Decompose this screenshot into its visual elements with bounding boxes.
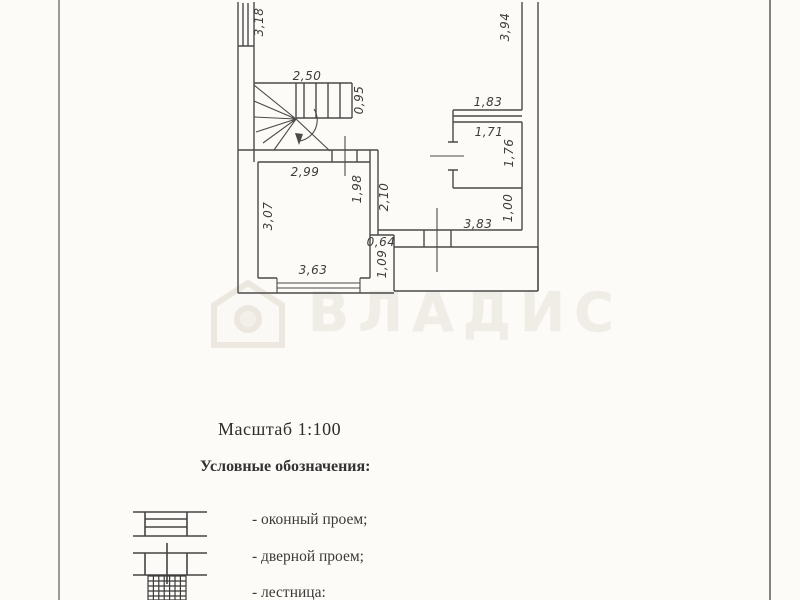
dimension-label: 2,50 [293, 69, 322, 83]
stair-direction-arrow [295, 133, 303, 145]
dimension-label: 1,83 [474, 95, 503, 109]
dimension-label: 3,83 [464, 217, 493, 231]
dimension-label: 1,71 [475, 125, 504, 139]
dimension-label: 1,00 [501, 194, 515, 223]
dimension-label: 3,07 [261, 202, 275, 231]
legend-label-door: - дверной проем; [252, 548, 364, 566]
stairs-symbol-icon [146, 574, 190, 600]
dimension-label: 3,63 [299, 263, 328, 277]
dimension-label: 2,99 [291, 165, 320, 179]
plan-dimensions: 3,18 2,50 0,95 3,94 1,83 1,71 1,76 1,00 … [252, 8, 516, 279]
dimension-label: 3,94 [498, 13, 512, 42]
legend-label-stairs: - лестница: [252, 584, 326, 600]
legend-label-window: - оконный проем; [252, 511, 367, 529]
window-symbol-icon [131, 506, 209, 538]
dimension-label: 0,95 [352, 86, 366, 115]
dimension-label: 0,64 [367, 235, 396, 249]
dimension-label: 3,18 [252, 8, 266, 37]
dimension-label: 1,09 [375, 250, 389, 279]
dimension-label: 2,10 [377, 183, 391, 212]
dimension-label: 1,98 [350, 175, 364, 204]
scanned-page: ВЛАДИС [0, 0, 800, 600]
legend-title: Условные обозначения: [200, 458, 371, 476]
scale-label: Масштаб 1:100 [218, 419, 341, 440]
floor-plan: 3,18 2,50 0,95 3,94 1,83 1,71 1,76 1,00 … [0, 0, 800, 600]
dimension-label: 1,76 [502, 139, 516, 168]
plan-walls [238, 2, 538, 293]
